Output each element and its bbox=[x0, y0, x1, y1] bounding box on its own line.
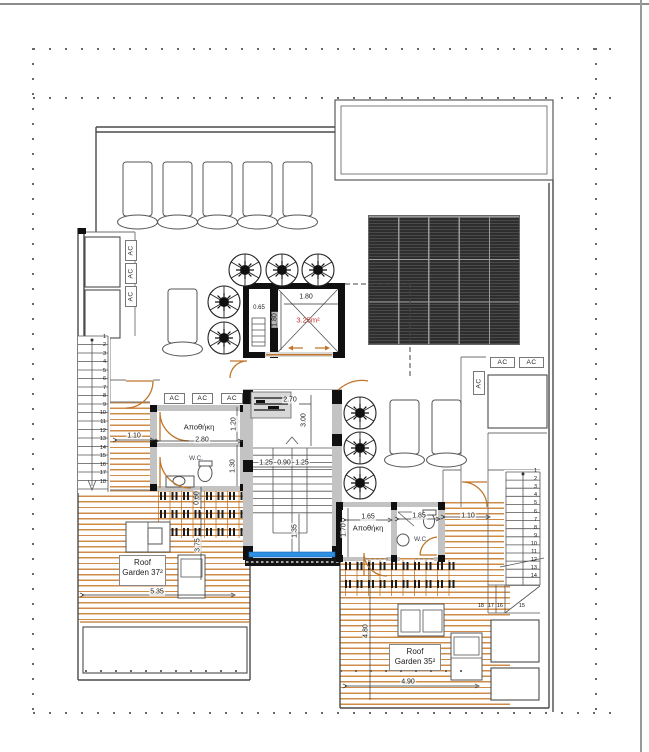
stair-step-number: 4 bbox=[94, 358, 106, 366]
ac-unit-label: AC bbox=[125, 286, 137, 307]
ac-unit-label: AC bbox=[519, 357, 544, 368]
dim-deck-right-depth: 4.80 bbox=[363, 623, 370, 639]
dim-wc-left-depth: 1.30 bbox=[230, 458, 237, 474]
dim-lift-depth: 1.80 bbox=[272, 312, 279, 328]
stair-step-number: 11 bbox=[94, 418, 106, 426]
ac-unit-label: AC bbox=[125, 240, 137, 261]
stair-step-number: 1 bbox=[525, 467, 537, 475]
stair-step-number: 3 bbox=[94, 350, 106, 358]
stair-step-number: 17 bbox=[94, 469, 106, 477]
room-label-wc-left: W.C. bbox=[189, 456, 203, 463]
dim-storage-right-depth: 1.70 bbox=[341, 522, 348, 538]
stair-step-number: 15 bbox=[94, 452, 106, 460]
ac-unit-label: AC bbox=[473, 371, 485, 395]
dim-right-door: 1.10 bbox=[460, 513, 476, 520]
stair-step-number: 6 bbox=[94, 375, 106, 383]
ac-unit-label: AC bbox=[490, 357, 515, 368]
roof-garden-left-line1: Roof bbox=[121, 558, 164, 568]
dim-storage-right-width: 1.65 bbox=[360, 514, 376, 521]
room-label-wc-right: W.C. bbox=[414, 537, 428, 544]
dim-stair-flight-b: 1.25 bbox=[294, 460, 310, 467]
roof-garden-right-label: Roof Garden 35² bbox=[389, 644, 441, 671]
dim-pergola-depth: 0.60 bbox=[194, 490, 201, 506]
stair-step-number: 8 bbox=[94, 392, 106, 400]
stair-step-number: 10 bbox=[94, 409, 106, 417]
stair-step-number: 13 bbox=[525, 564, 537, 572]
roof-garden-right-line2: Garden 35² bbox=[391, 657, 439, 667]
stair-step-number: 11 bbox=[525, 548, 537, 556]
stair-step-number: 7 bbox=[525, 516, 537, 524]
ac-unit-label: AC bbox=[221, 393, 243, 404]
room-label-storage-right: Αποθήκη bbox=[353, 524, 384, 532]
stair-step-number: 12 bbox=[94, 427, 106, 435]
dim-stair-bottom: 1.35 bbox=[292, 523, 299, 539]
dim-wc-right-width: 1.85 bbox=[411, 513, 427, 520]
ac-unit-label: AC bbox=[125, 263, 137, 284]
room-label-storage-left: Αποθήκη bbox=[184, 423, 215, 431]
dim-stair-total: 3.00 bbox=[301, 412, 308, 428]
roof-garden-right-line1: Roof bbox=[391, 647, 439, 657]
dim-stair-mid: 0.90 bbox=[276, 460, 292, 467]
dim-shaft-width: 0.65 bbox=[252, 305, 266, 311]
stair-step-number: 5 bbox=[525, 499, 537, 507]
stair-step-number: 2 bbox=[525, 475, 537, 483]
dim-left-door: 1.10 bbox=[126, 433, 142, 440]
dim-deck-left-depth: 3.75 bbox=[195, 537, 202, 553]
stair-step-number: 4 bbox=[525, 491, 537, 499]
stair-step-number: 3 bbox=[525, 483, 537, 491]
stair-step-number: 8 bbox=[525, 524, 537, 532]
stair-step-number: 9 bbox=[525, 532, 537, 540]
stair-step-number: 1 bbox=[94, 333, 106, 341]
stair-step-number: 5 bbox=[94, 367, 106, 375]
stair-step-number: 18 bbox=[94, 478, 106, 486]
dim-deck-left-width: 5.35 bbox=[149, 589, 165, 596]
stair-step-number: 10 bbox=[525, 540, 537, 548]
stair-step-number: 12 bbox=[525, 556, 537, 564]
stair-step-number: 14 bbox=[525, 572, 537, 580]
floor-plan-canvas: 1.10 2.80 1.20 1.30 Αποθήκη W.C. 1.80 1.… bbox=[0, 0, 649, 752]
dim-lift-width: 1.80 bbox=[298, 294, 314, 301]
dim-storage-left-width: 2.80 bbox=[194, 437, 210, 444]
stair-step-number: 7 bbox=[94, 384, 106, 392]
stair-step-number: 2 bbox=[94, 341, 106, 349]
dim-stair-flight-a: 1.25 bbox=[258, 460, 274, 467]
ac-unit-label: AC bbox=[192, 393, 213, 404]
stair-step-number: 16 bbox=[94, 461, 106, 469]
stair-step-number: 16 bbox=[491, 602, 503, 610]
stair-step-number: 6 bbox=[525, 508, 537, 516]
stair-step-number: 14 bbox=[94, 444, 106, 452]
stair-step-number: 13 bbox=[94, 435, 106, 443]
stair-step-number: 15 bbox=[513, 602, 525, 610]
ac-unit-label: AC bbox=[164, 393, 185, 404]
dim-storage-left-depth: 1.20 bbox=[231, 416, 238, 432]
roof-garden-left-label: Roof Garden 37² bbox=[119, 555, 166, 586]
stair-step-number: 9 bbox=[94, 401, 106, 409]
dim-deck-right-width: 4.90 bbox=[400, 679, 416, 686]
dim-stair-run: 2.70 bbox=[282, 397, 298, 404]
roof-garden-left-line2: Garden 37² bbox=[121, 568, 164, 578]
lift-area-label: 3.25m² bbox=[295, 316, 320, 324]
